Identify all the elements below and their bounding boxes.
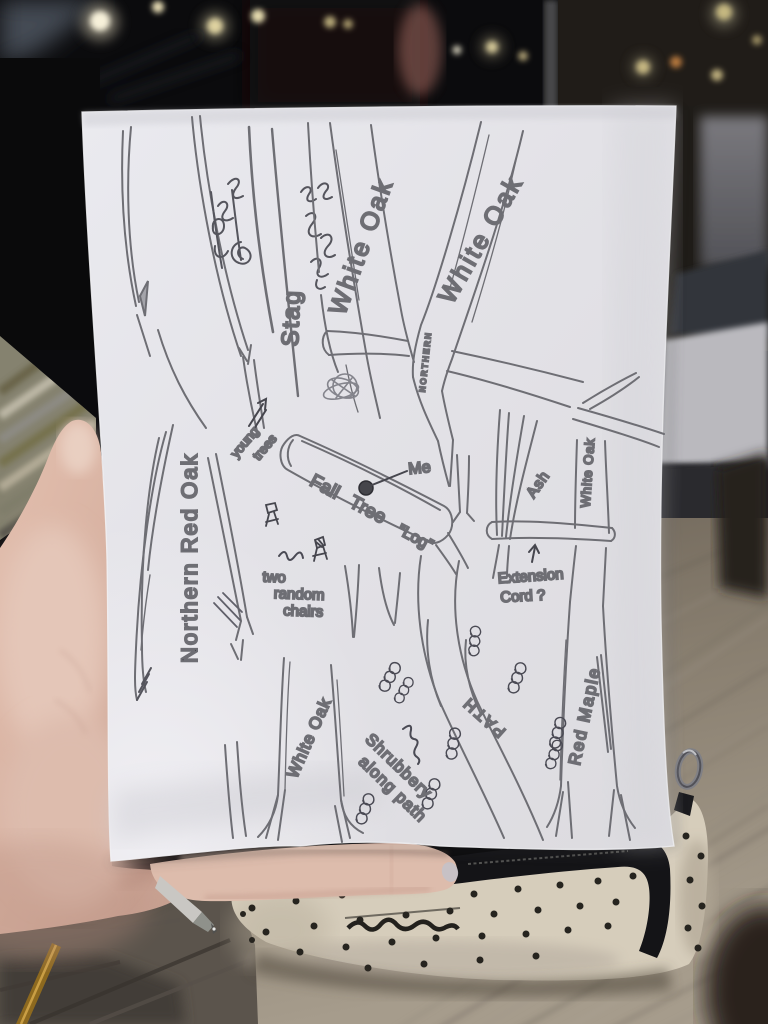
svg-text:Me: Me bbox=[408, 459, 432, 478]
svg-text:random: random bbox=[273, 585, 324, 604]
svg-text:chairs: chairs bbox=[283, 602, 324, 620]
svg-text:Cord ?: Cord ? bbox=[500, 587, 546, 606]
svg-text:Stag: Stag bbox=[277, 289, 306, 347]
svg-text:two: two bbox=[262, 569, 286, 587]
svg-text:Northern Red Oak: Northern Red Oak bbox=[177, 452, 202, 663]
